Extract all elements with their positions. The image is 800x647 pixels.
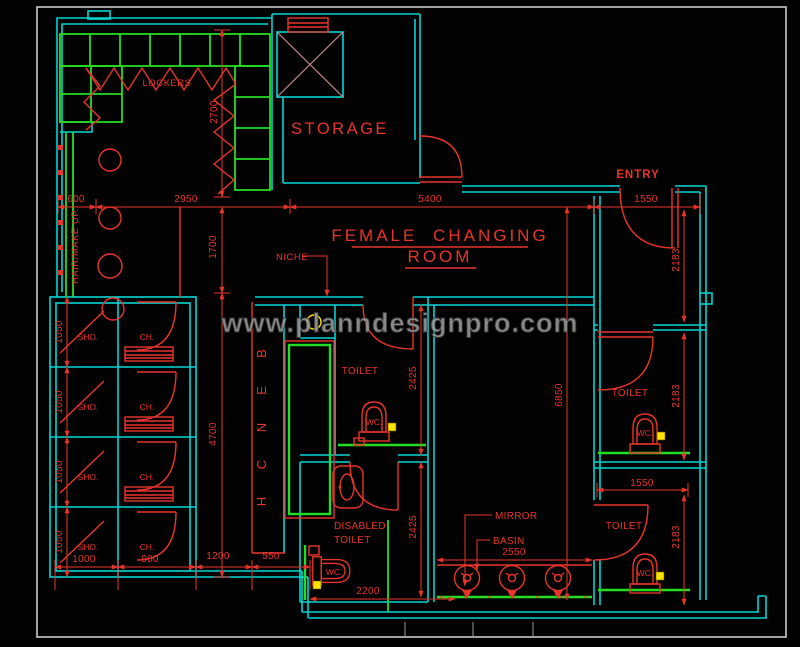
room-title-line1: FEMALE CHANGING: [331, 226, 548, 245]
dim-6850: 6850: [554, 383, 565, 407]
dim-2425: 2425: [408, 515, 419, 539]
floor-seam-lines: [405, 622, 533, 636]
changing-label: CH.: [140, 472, 155, 482]
cad-canvas: STORAGE LOCKERS ENTRY HAIR/MAKE UP. NICH…: [0, 0, 800, 647]
shower-label: SHO.: [78, 472, 99, 482]
dim-1050: 1050: [54, 460, 65, 484]
roll-holder-icon: [388, 423, 396, 431]
wc-label: WC.: [366, 417, 383, 427]
disabled-toilet-label-2: TOILET: [334, 535, 371, 546]
toilet1-label: TOILET: [342, 366, 379, 377]
entry-label: ENTRY: [616, 169, 660, 181]
bench-letter: E: [254, 385, 269, 395]
dim-1000: 1000: [72, 554, 96, 565]
dim-2550: 2550: [502, 547, 526, 558]
wc-label: WC.: [637, 568, 654, 578]
disabled-toilet-label-1: DISABLED: [334, 521, 386, 532]
dim-2700: 2700: [209, 100, 220, 124]
shower-label: SHO.: [78, 542, 99, 552]
bench-letter: H: [254, 496, 269, 506]
bench-letter: C: [254, 459, 269, 469]
dim-2183: 2183: [671, 525, 682, 549]
dim-550: 550: [262, 551, 280, 562]
floor-plan-drawing: STORAGE LOCKERS ENTRY HAIR/MAKE UP. NICH…: [0, 0, 800, 647]
dim-2183: 2183: [671, 384, 682, 408]
shower-label: SHO.: [78, 402, 99, 412]
dim-1050: 1050: [54, 390, 65, 414]
bench-letter: N: [254, 422, 269, 432]
hair-makeup-label: HAIR/MAKE UP.: [70, 208, 81, 284]
dim-2183: 2183: [671, 248, 682, 272]
dim-1050: 1050: [54, 320, 65, 344]
roll-holder-icon: [656, 572, 664, 580]
basin-1: [455, 566, 480, 600]
mid-toilet-label: TOILET: [612, 388, 649, 399]
storage-label: STORAGE: [291, 120, 389, 138]
basin-2: [500, 566, 525, 600]
dim-2950: 2950: [174, 194, 198, 205]
niche-label: NICHE: [276, 252, 308, 263]
watermark: www.planndesignpro.com: [220, 308, 578, 338]
dim-2200: 2200: [356, 586, 380, 597]
dim-1550-toilets: 1550: [630, 478, 654, 489]
changing-label: CH.: [140, 402, 155, 412]
disabled-basin: [333, 466, 363, 508]
dim-600: 600: [67, 194, 85, 205]
dim-5400: 5400: [418, 194, 442, 205]
mirror-label: MIRROR: [495, 511, 537, 522]
dim-1700: 1700: [208, 235, 219, 259]
dim-1200: 1200: [206, 551, 230, 562]
changing-label: CH.: [140, 332, 155, 342]
dim-1550-entry: 1550: [634, 194, 658, 205]
wc-label: WC.: [637, 428, 654, 438]
wc-label: WC.: [326, 567, 343, 577]
dim-2425: 2425: [408, 366, 419, 390]
roll-holder-icon: [657, 432, 665, 440]
lockers-label: LOCKERS: [143, 78, 192, 89]
changing-label: CH.: [140, 542, 155, 552]
dim-900: 900: [141, 554, 159, 565]
dim-1050: 1050: [54, 530, 65, 554]
bench-letter: B: [254, 348, 269, 358]
shower-label: SHO.: [78, 332, 99, 342]
roll-holder-icon: [313, 581, 321, 589]
bottom-toilet-label: TOILET: [606, 521, 643, 532]
dim-4700: 4700: [208, 422, 219, 446]
basin-label: BASIN: [493, 536, 525, 547]
room-title-line2: ROOM: [408, 247, 473, 266]
